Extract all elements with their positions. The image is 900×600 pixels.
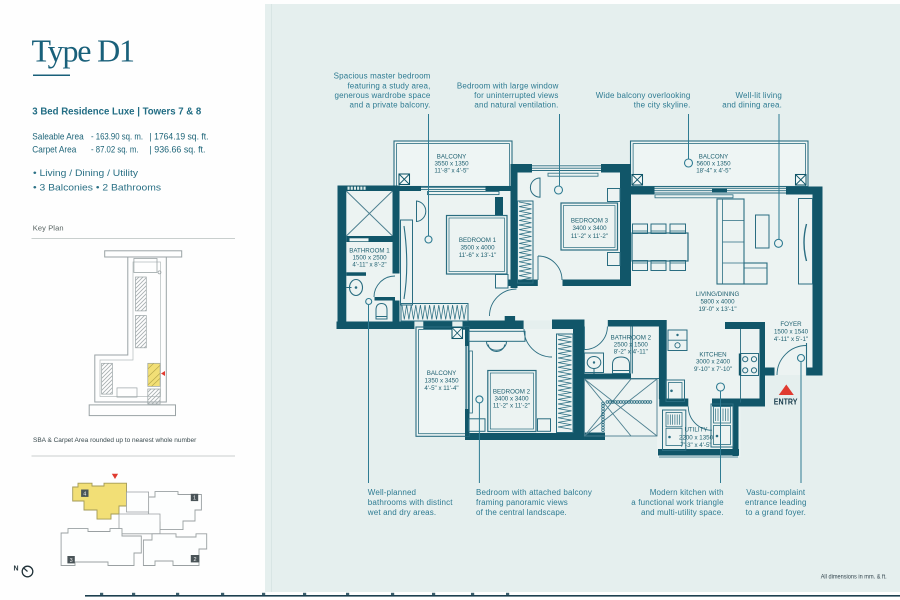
svg-text:3400 x 3400: 3400 x 3400: [494, 396, 529, 403]
svg-text:ENTRY: ENTRY: [774, 397, 798, 407]
svg-text:3: 3: [70, 558, 73, 564]
svg-text:19'-0" x 13'-1": 19'-0" x 13'-1": [698, 306, 736, 313]
svg-text:BEDROOM 2: BEDROOM 2: [493, 389, 531, 396]
svg-text:and natural ventilation.: and natural ventilation.: [474, 101, 558, 110]
svg-text:BEDROOM 3: BEDROOM 3: [571, 218, 609, 225]
svg-text:Saleable Area- 163.90 sq. m.|: Saleable Area- 163.90 sq. m.| 1764.19 sq…: [32, 132, 208, 142]
svg-text:Wide balcony overlooking: Wide balcony overlooking: [596, 91, 691, 100]
svg-text:3550 x 1350: 3550 x 1350: [434, 161, 469, 168]
svg-text:4'-11" x 5'-1": 4'-11" x 5'-1": [774, 336, 808, 343]
svg-text:Bedroom with large window: Bedroom with large window: [457, 81, 559, 90]
svg-text:All dimensions in mm. & ft.: All dimensions in mm. & ft.: [821, 574, 887, 580]
svg-text:4'-5" x 11'-4": 4'-5" x 11'-4": [424, 385, 458, 392]
svg-text:2: 2: [193, 557, 196, 563]
svg-text:Type D1: Type D1: [32, 33, 136, 69]
svg-text:• 3 Balconies • 2 Bathrooms: • 3 Balconies • 2 Bathrooms: [33, 183, 161, 193]
svg-text:5600 x 1350: 5600 x 1350: [696, 161, 731, 168]
svg-text:BALCONY: BALCONY: [699, 154, 729, 161]
svg-text:of the central landscape.: of the central landscape.: [476, 508, 567, 517]
svg-text:entrance leading: entrance leading: [745, 498, 807, 507]
svg-text:framing panoramic views: framing panoramic views: [476, 498, 568, 507]
svg-text:3400 x 3400: 3400 x 3400: [572, 225, 607, 232]
svg-text:1500 x 2500: 1500 x 2500: [352, 255, 387, 262]
svg-text:Key Plan: Key Plan: [33, 224, 64, 233]
svg-text:UTILITY: UTILITY: [684, 427, 707, 434]
svg-text:N: N: [14, 566, 19, 573]
svg-text:3 Bed Residence Luxe | Tower: 3 Bed Residence Luxe | Towers 7 & 8: [32, 107, 201, 118]
svg-text:BALCONY: BALCONY: [437, 154, 467, 161]
svg-text:Spacious master bedroom: Spacious master bedroom: [334, 72, 431, 81]
svg-text:and multi-utility space.: and multi-utility space.: [641, 508, 724, 517]
svg-text:11'-8" x 4'-5": 11'-8" x 4'-5": [434, 168, 468, 175]
svg-text:bathrooms with distinct: bathrooms with distinct: [368, 498, 453, 507]
svg-text:a functional work triangle: a functional work triangle: [631, 498, 724, 507]
svg-text:to a grand foyer.: to a grand foyer.: [746, 508, 806, 517]
svg-text:3000 x 2400: 3000 x 2400: [696, 359, 731, 366]
svg-text:Carpet Area- 87.02 sq. m.| 93: Carpet Area- 87.02 sq. m.| 936.66 sq. ft…: [32, 145, 205, 155]
svg-text:KITCHEN: KITCHEN: [699, 352, 726, 359]
svg-text:5800 x 4000: 5800 x 4000: [700, 299, 735, 306]
svg-text:9'-10" x 7'-10": 9'-10" x 7'-10": [694, 366, 732, 373]
svg-text:Vastu-complaint: Vastu-complaint: [746, 488, 806, 497]
svg-text:11'-2" x 11'-2": 11'-2" x 11'-2": [493, 403, 530, 410]
svg-text:2200 x 1350: 2200 x 1350: [679, 435, 714, 442]
svg-text:11'-2" x 11'-2": 11'-2" x 11'-2": [571, 233, 608, 240]
svg-text:featuring a study area,: featuring a study area,: [347, 81, 430, 90]
svg-text:SBA & Carpet Area rounded up t: SBA & Carpet Area rounded up to nearest …: [33, 437, 197, 444]
svg-text:Bedroom with attached balcony: Bedroom with attached balcony: [476, 488, 592, 497]
svg-text:Well-lit living: Well-lit living: [735, 91, 782, 100]
svg-text:FOYER: FOYER: [780, 321, 802, 328]
svg-text:Well-planned: Well-planned: [368, 488, 416, 497]
svg-text:BEDROOM 1: BEDROOM 1: [459, 237, 497, 244]
svg-text:7'-3" x 4'-5": 7'-3" x 4'-5": [680, 442, 711, 449]
svg-text:1500 x 1540: 1500 x 1540: [774, 329, 809, 336]
svg-text:1: 1: [193, 496, 196, 502]
svg-text:1350 x 3450: 1350 x 3450: [424, 378, 459, 385]
svg-text:18'-4" x 4'-5": 18'-4" x 4'-5": [696, 168, 731, 175]
svg-text:wet and dry areas.: wet and dry areas.: [367, 508, 437, 517]
svg-text:BALCONY: BALCONY: [427, 370, 457, 377]
svg-text:Modern kitchen with: Modern kitchen with: [650, 488, 724, 497]
svg-text:for uninterrupted views: for uninterrupted views: [474, 91, 558, 100]
svg-text:and dining area.: and dining area.: [722, 101, 782, 110]
svg-text:LIVING/DINING: LIVING/DINING: [696, 291, 740, 298]
svg-text:BATHROOM 1: BATHROOM 1: [349, 248, 390, 255]
svg-text:• Living / Dining / Utility: • Living / Dining / Utility: [33, 168, 138, 178]
svg-text:4'-11" x 8'-2": 4'-11" x 8'-2": [352, 262, 386, 269]
svg-text:4: 4: [83, 491, 86, 497]
svg-text:3500 x 4000: 3500 x 4000: [460, 245, 495, 252]
svg-text:11'-6" x 13'-1": 11'-6" x 13'-1": [459, 252, 497, 259]
svg-text:generous wardrobe space: generous wardrobe space: [335, 91, 431, 100]
svg-text:and a private balcony.: and a private balcony.: [350, 101, 431, 110]
svg-text:the city skyline.: the city skyline.: [634, 101, 691, 110]
